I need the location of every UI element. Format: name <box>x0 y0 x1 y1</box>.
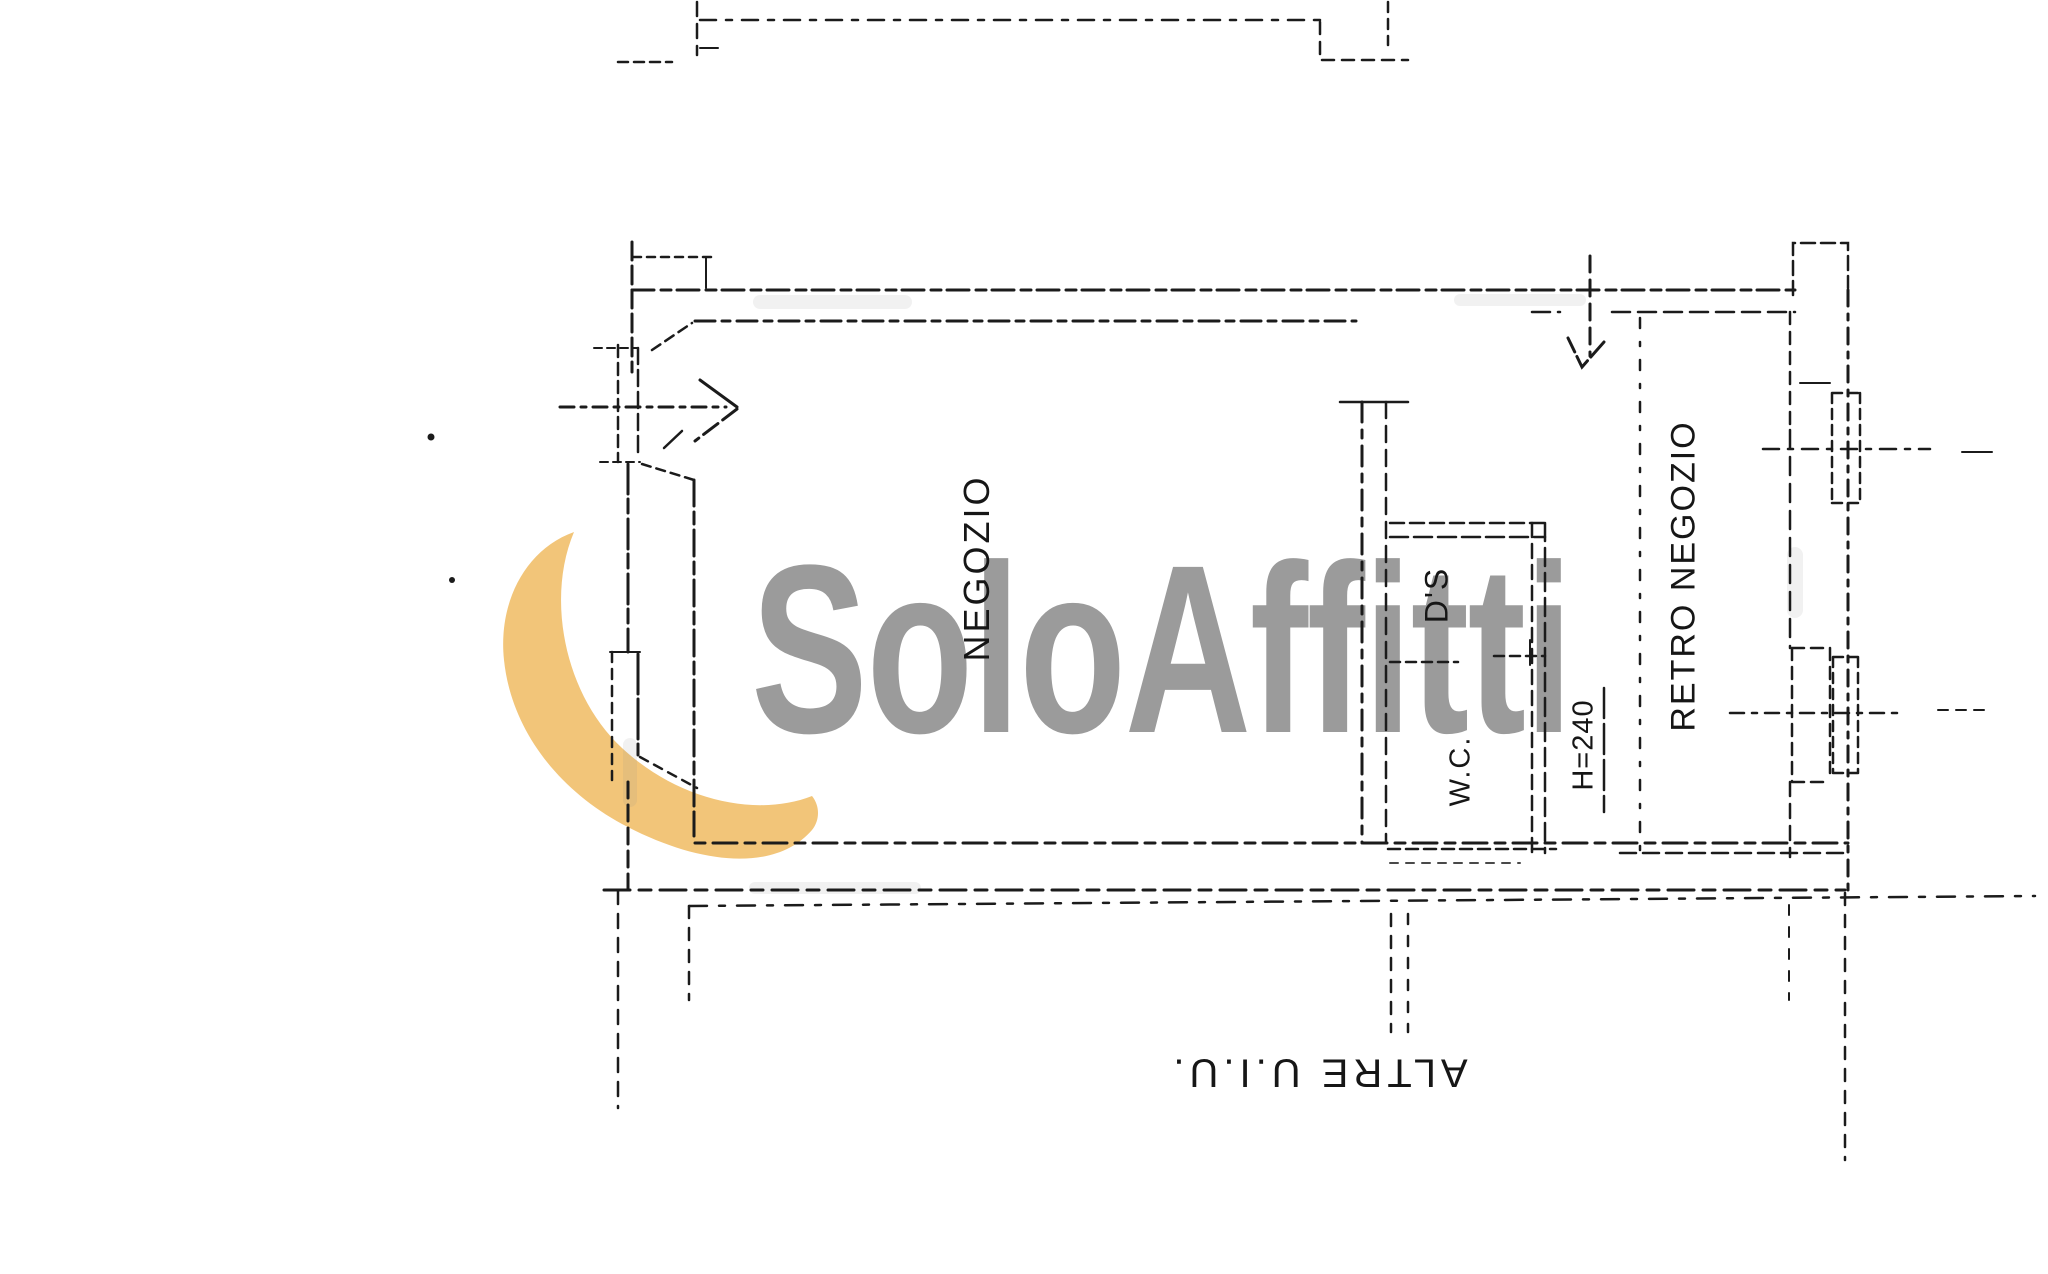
other-units-label: ALTRE U.I.U. <box>1168 1050 1467 1095</box>
wc-closet-walls <box>1388 523 1556 863</box>
ceiling-height-note: H=240 <box>1568 699 1601 790</box>
room-label-wc: W.C. <box>1445 736 1478 807</box>
backshop-door-arrow-icon <box>1568 256 1604 367</box>
top-neighbor-fragment <box>618 2 1408 62</box>
scan-specks <box>428 434 456 584</box>
entrance-arrow-icon <box>560 380 737 448</box>
lower-area-walls <box>1391 914 1408 1032</box>
room-label-ds: D'S <box>1419 567 1456 624</box>
corridor-walls <box>1604 318 1640 853</box>
left-wall <box>594 345 697 890</box>
room-label-retro-negozio: RETRO NEGOZIO <box>1665 420 1704 731</box>
floorplan-page: SoloAffitti <box>0 0 2048 1274</box>
scan-smudges <box>630 300 1795 888</box>
floorplan-drawing <box>0 0 2048 1274</box>
room-label-negozio: NEGOZIO <box>956 474 998 661</box>
partition-wall <box>1340 402 1408 843</box>
